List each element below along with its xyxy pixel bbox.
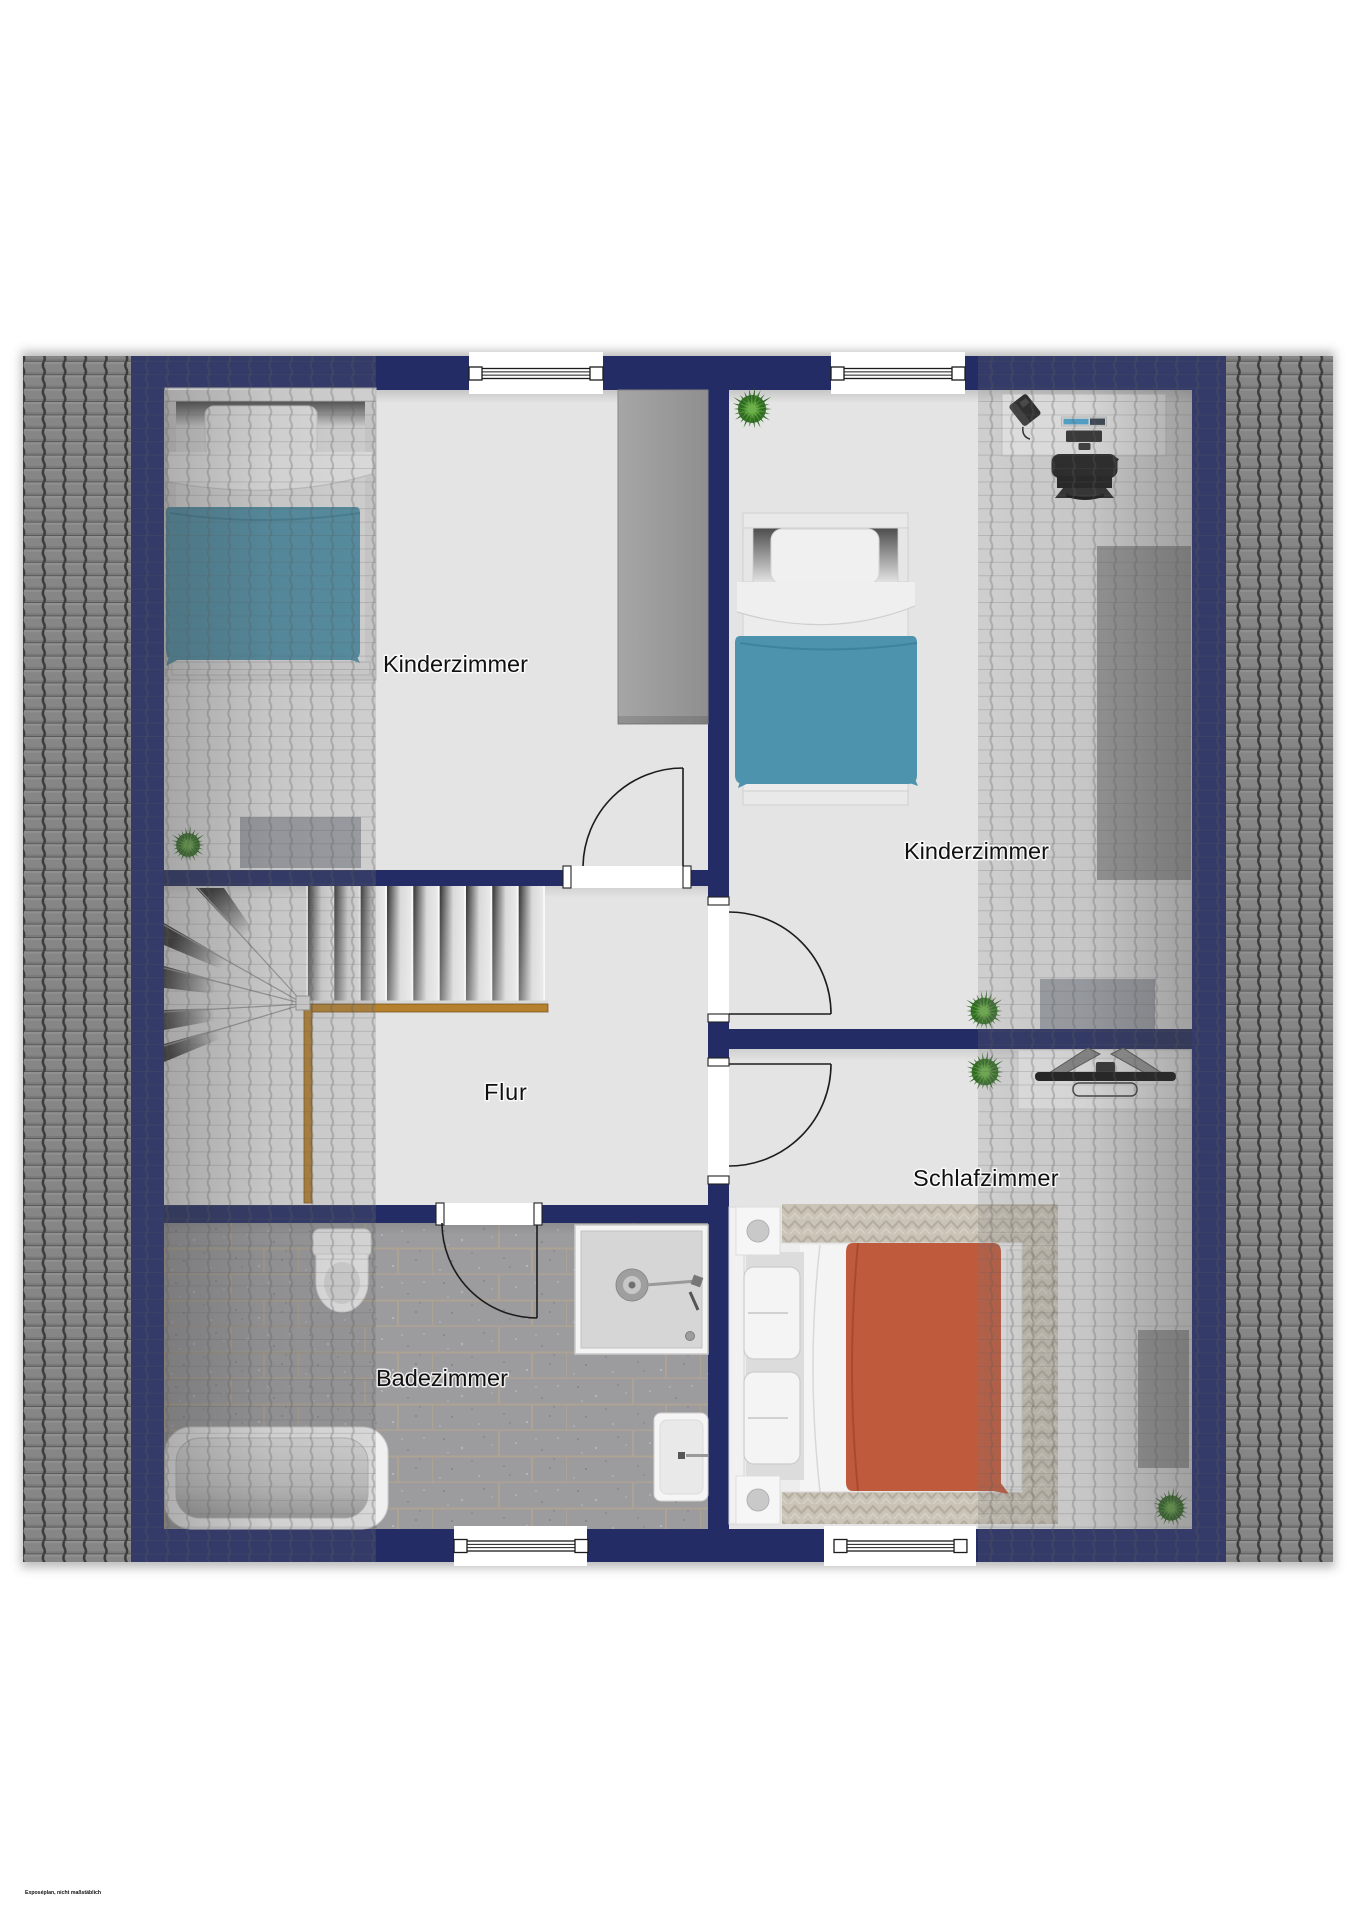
svg-text:Flur: Flur	[484, 1079, 528, 1105]
svg-text:Kinderzimmer: Kinderzimmer	[904, 838, 1049, 864]
svg-text:Kinderzimmer: Kinderzimmer	[383, 651, 528, 677]
svg-text:Exposéplan, nicht maßstäblich: Exposéplan, nicht maßstäblich	[25, 1890, 101, 1896]
svg-text:Schlafzimmer: Schlafzimmer	[913, 1165, 1059, 1191]
svg-text:Badezimmer: Badezimmer	[376, 1365, 508, 1391]
